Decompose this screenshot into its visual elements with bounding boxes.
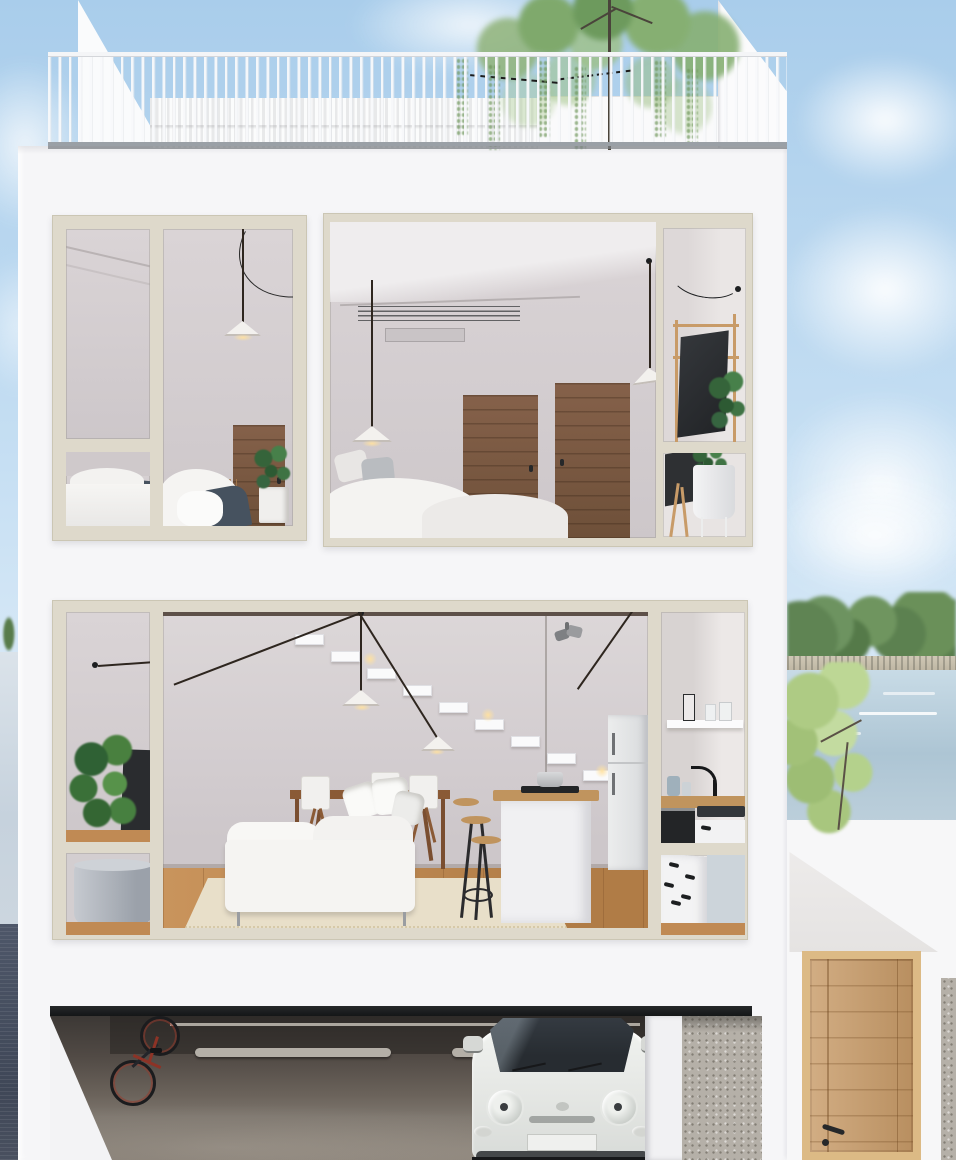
car-grille	[529, 1116, 595, 1123]
left-lake-water	[0, 652, 20, 926]
pane-left-tall	[66, 229, 150, 439]
wall-corner-line	[545, 616, 547, 796]
grey-planter	[74, 863, 150, 925]
pendant-cable-arc	[223, 229, 293, 316]
foreground-tree	[770, 662, 904, 840]
wood-floor	[66, 830, 150, 842]
headlight	[488, 1090, 522, 1124]
wall-light-cable	[668, 251, 745, 303]
jar	[667, 776, 680, 796]
pendant-cable	[360, 612, 362, 692]
open-shelf	[667, 720, 743, 728]
gravel-strip-right	[941, 978, 956, 1160]
pendant-cable	[649, 262, 651, 368]
step-light	[481, 708, 495, 722]
pane-left-tall-living	[66, 612, 150, 842]
roof-terrace	[18, 0, 787, 152]
cloud	[770, 470, 956, 600]
bedroom-window-right	[323, 213, 753, 547]
desk-plant	[707, 364, 746, 442]
bedroom-window-left	[52, 215, 307, 541]
door-groove	[827, 959, 829, 1152]
fridge-seam	[608, 762, 648, 764]
ac-vent-panel	[385, 328, 465, 342]
pane-desk-upper	[663, 228, 746, 442]
garage-column-right	[645, 1016, 682, 1160]
planter-stand-leg	[725, 517, 727, 537]
glass-vase	[683, 694, 695, 721]
door-groove	[897, 959, 899, 1152]
pane-main-bedroom	[330, 222, 656, 538]
fridge	[608, 715, 648, 870]
cup	[719, 702, 732, 721]
wood-floor	[661, 923, 745, 935]
white-planter	[693, 465, 735, 519]
pendant-lamp	[630, 365, 656, 385]
sofa-leg	[237, 912, 240, 926]
license-plate	[527, 1134, 597, 1151]
sofa-leg	[403, 912, 406, 926]
planter-stand-leg	[701, 517, 703, 537]
bar-stool	[453, 798, 479, 806]
wall-light-cable	[98, 660, 150, 666]
stair-step	[511, 736, 540, 747]
door-knob	[560, 459, 564, 466]
table-leg	[441, 799, 445, 869]
stool-footring	[463, 888, 493, 902]
monstera-plant	[249, 441, 293, 499]
ceiling-beam	[66, 262, 150, 290]
pane-desk-lower	[663, 453, 746, 537]
pane-main-bedroom	[163, 229, 293, 526]
wall-mounted-bicycle	[106, 1014, 178, 1112]
car-badge	[556, 1102, 569, 1111]
car-windshield	[490, 1018, 634, 1072]
headlight	[602, 1090, 636, 1124]
wheel-stop	[195, 1048, 391, 1057]
cloud	[795, 55, 956, 185]
living-floor-window	[52, 600, 748, 940]
pendant-cable	[174, 613, 361, 686]
bar-stool	[471, 836, 501, 844]
ceiling-track	[163, 612, 648, 616]
architectural-render	[0, 0, 956, 1160]
ladder-shelf-bar	[673, 324, 739, 327]
lamp-glow	[233, 334, 253, 341]
cooking-pot	[537, 772, 563, 787]
ac-grille-lines	[358, 306, 520, 321]
pendant-cable	[371, 280, 373, 428]
indicator-light	[474, 1126, 492, 1137]
bed-duvet	[422, 494, 568, 538]
stair-step	[331, 651, 360, 662]
railing-top-rail	[48, 52, 787, 57]
stair-step	[367, 668, 396, 679]
pane-left-small-bed	[66, 452, 150, 526]
island-base	[501, 801, 591, 923]
garage-lintel-beam	[50, 1006, 752, 1016]
side-mirror	[463, 1036, 483, 1053]
sink	[697, 806, 745, 817]
pane-main-living	[163, 612, 648, 928]
stair-step	[439, 702, 468, 713]
bed-duvet	[66, 484, 150, 526]
cup	[705, 704, 716, 721]
step-light	[595, 764, 609, 778]
pendant-cable	[242, 229, 244, 323]
bike-saddle	[150, 1048, 162, 1053]
bar-stool	[461, 816, 491, 824]
driveway-shadow	[682, 1016, 762, 1032]
chaise-sofa	[225, 840, 415, 912]
terrace-deck-edge	[48, 146, 787, 149]
lamp-glow	[362, 440, 382, 447]
jar	[682, 782, 691, 796]
oven	[661, 808, 695, 843]
wall-light	[735, 286, 741, 292]
stair-step	[547, 753, 576, 764]
cloud	[780, 205, 956, 375]
step-light	[363, 652, 377, 666]
bed-sheet	[177, 491, 223, 526]
gravel-driveway	[682, 1016, 762, 1160]
lamp-glow	[353, 704, 371, 711]
pane-kitchen-lower	[661, 855, 745, 935]
fiddle-leaf-plant	[66, 730, 150, 842]
door-knob	[529, 465, 533, 472]
cooktop	[521, 786, 579, 793]
ceiling	[330, 222, 656, 302]
planter-rim	[74, 859, 150, 871]
kitchen-cabinet	[695, 820, 745, 843]
wood-floor	[66, 922, 150, 935]
pane-left-small-living	[66, 853, 150, 935]
ceiling-spotlight	[553, 622, 589, 648]
dining-chair	[301, 776, 330, 810]
door-lock	[822, 1139, 829, 1146]
lamp-glow	[429, 749, 445, 755]
pane-kitchen-upper	[661, 612, 745, 843]
terrace-railing-bars	[48, 54, 787, 146]
entry-door	[802, 951, 921, 1160]
white-car	[472, 1010, 652, 1160]
left-paving-strip	[0, 924, 20, 1160]
